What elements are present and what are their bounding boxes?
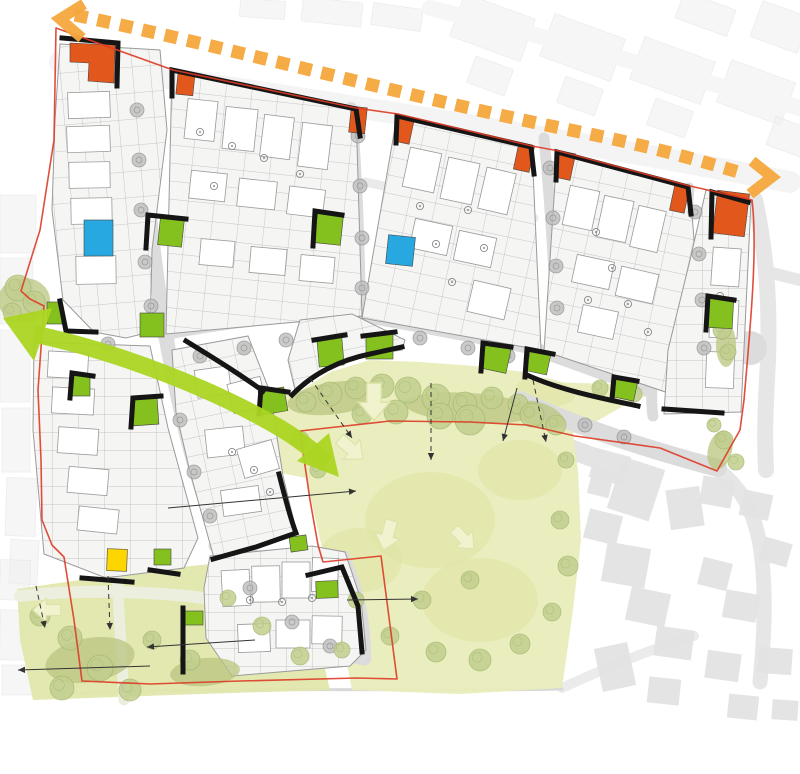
park-tree: [253, 617, 271, 635]
house-plot: [711, 247, 742, 287]
park-tree: [728, 454, 744, 470]
context-building: [0, 195, 36, 253]
yellow-key-plot: [107, 549, 128, 572]
house-plot: [199, 239, 235, 268]
house-plot: [69, 162, 110, 189]
house-plot: [297, 122, 332, 169]
context-building: [704, 650, 742, 682]
context-building: [653, 626, 695, 661]
street-tree: [355, 231, 369, 245]
street-tree: [173, 413, 187, 427]
context-building: [665, 486, 704, 530]
context-building: [697, 557, 733, 591]
house-plot: [237, 178, 278, 210]
block-a: [52, 44, 167, 338]
street-tree: [549, 259, 563, 273]
house-plot: [282, 562, 310, 598]
house-plot: [76, 256, 116, 285]
green-key-plot: [131, 398, 159, 426]
street-tree: [237, 341, 251, 355]
context-building: [583, 508, 623, 545]
street-tree: [546, 211, 560, 225]
park-tree: [520, 403, 544, 427]
street-tree: [279, 333, 293, 347]
context-building: [739, 489, 774, 521]
garage-court-symbol: [587, 299, 589, 301]
green-key-plot: [289, 535, 308, 552]
garage-court-symbol: [253, 469, 255, 471]
context-building: [750, 1, 800, 54]
street-tree: [697, 341, 711, 355]
park-tree: [455, 405, 485, 435]
street-tree: [132, 153, 146, 167]
context-building: [239, 0, 285, 20]
park-tree: [58, 626, 82, 650]
cyan-key-plot: [386, 235, 416, 267]
street-tree: [243, 581, 257, 595]
house-plot: [249, 246, 287, 275]
context-building: [301, 0, 363, 27]
context-building: [601, 541, 651, 588]
green-key-plot: [154, 549, 171, 565]
garage-court-symbol: [627, 303, 629, 305]
context-building: [371, 3, 424, 32]
green-key-plot: [185, 611, 203, 625]
park-tree: [543, 603, 561, 621]
context-building: [556, 76, 603, 116]
grass-blotch: [478, 440, 562, 500]
park-tree: [426, 642, 446, 662]
garage-court-symbol: [451, 281, 453, 283]
park-tree: [510, 634, 530, 654]
park-tree: [558, 556, 578, 576]
garage-court-symbol: [299, 173, 301, 175]
context-building: [5, 477, 37, 536]
context-building: [722, 589, 760, 622]
house-plot: [260, 114, 295, 159]
context-building: [766, 116, 800, 157]
street-tree: [550, 301, 564, 315]
context-building: [647, 676, 682, 705]
park-tree: [395, 377, 421, 403]
context-road: [768, 272, 800, 280]
house-plot: [299, 255, 335, 284]
cyan-key-plot: [84, 220, 113, 256]
park-tree: [23, 291, 45, 313]
park-tree: [50, 676, 74, 700]
house-plot: [77, 506, 119, 534]
street-tree: [285, 615, 299, 629]
context-building: [466, 56, 513, 96]
grass-blotch: [422, 558, 538, 642]
masterplan-svg: [0, 0, 800, 774]
park-tree: [296, 392, 316, 412]
garage-court-symbol: [231, 145, 233, 147]
house-plot: [189, 170, 228, 202]
street-tree: [203, 509, 217, 523]
context-building: [2, 408, 30, 472]
park-tree: [334, 642, 350, 658]
house-plot: [67, 466, 109, 495]
park-tree: [551, 511, 569, 529]
park-tree: [345, 377, 367, 399]
street-tree: [144, 299, 158, 313]
context-building: [646, 98, 693, 138]
street-tree: [138, 255, 152, 269]
context-building: [757, 647, 793, 675]
garage-court-symbol: [263, 157, 265, 159]
context-building: [699, 475, 735, 508]
green-key-plot: [316, 581, 339, 599]
house-plot: [67, 125, 111, 152]
garage-court-symbol: [249, 599, 251, 601]
garage-court-symbol: [199, 131, 201, 133]
park-tree: [558, 452, 574, 468]
garage-court-symbol: [595, 231, 597, 233]
park-tree: [720, 344, 736, 360]
park-tree: [592, 380, 608, 396]
garage-court-symbol: [269, 491, 271, 493]
garage-court-symbol: [611, 267, 613, 269]
park-tree: [707, 418, 721, 432]
street-tree: [355, 281, 369, 295]
street-tree: [578, 418, 592, 432]
street-tree: [353, 179, 367, 193]
garage-court-symbol: [483, 247, 485, 249]
green-key-plot: [140, 313, 164, 337]
garage-court-symbol: [311, 597, 313, 599]
context-building: [771, 699, 798, 721]
context-building: [594, 642, 636, 692]
park-tree: [291, 647, 309, 665]
garage-court-symbol: [231, 451, 233, 453]
garage-court-symbol: [435, 243, 437, 245]
park-tree: [481, 387, 503, 409]
context-building: [675, 0, 736, 37]
masterplan-site-plan: [0, 0, 800, 774]
context-building: [625, 586, 671, 628]
street-tree: [187, 465, 201, 479]
house-plot: [68, 91, 111, 118]
garage-court-symbol: [419, 205, 421, 207]
garage-court-symbol: [213, 185, 215, 187]
park-tree: [461, 571, 479, 589]
park-tree: [469, 649, 491, 671]
green-key-plot: [158, 217, 185, 247]
park-tree: [220, 590, 236, 606]
house-plot: [57, 427, 99, 456]
garage-court-symbol: [467, 209, 469, 211]
park-tree: [427, 403, 453, 429]
street-tree: [461, 341, 475, 355]
garage-court-symbol: [647, 331, 649, 333]
street-tree: [692, 247, 706, 261]
context-building: [727, 693, 759, 720]
garage-court-symbol: [281, 601, 283, 603]
house-plot: [222, 106, 258, 151]
context-road: [430, 8, 800, 108]
street-tree: [130, 103, 144, 117]
street-tree: [413, 331, 427, 345]
